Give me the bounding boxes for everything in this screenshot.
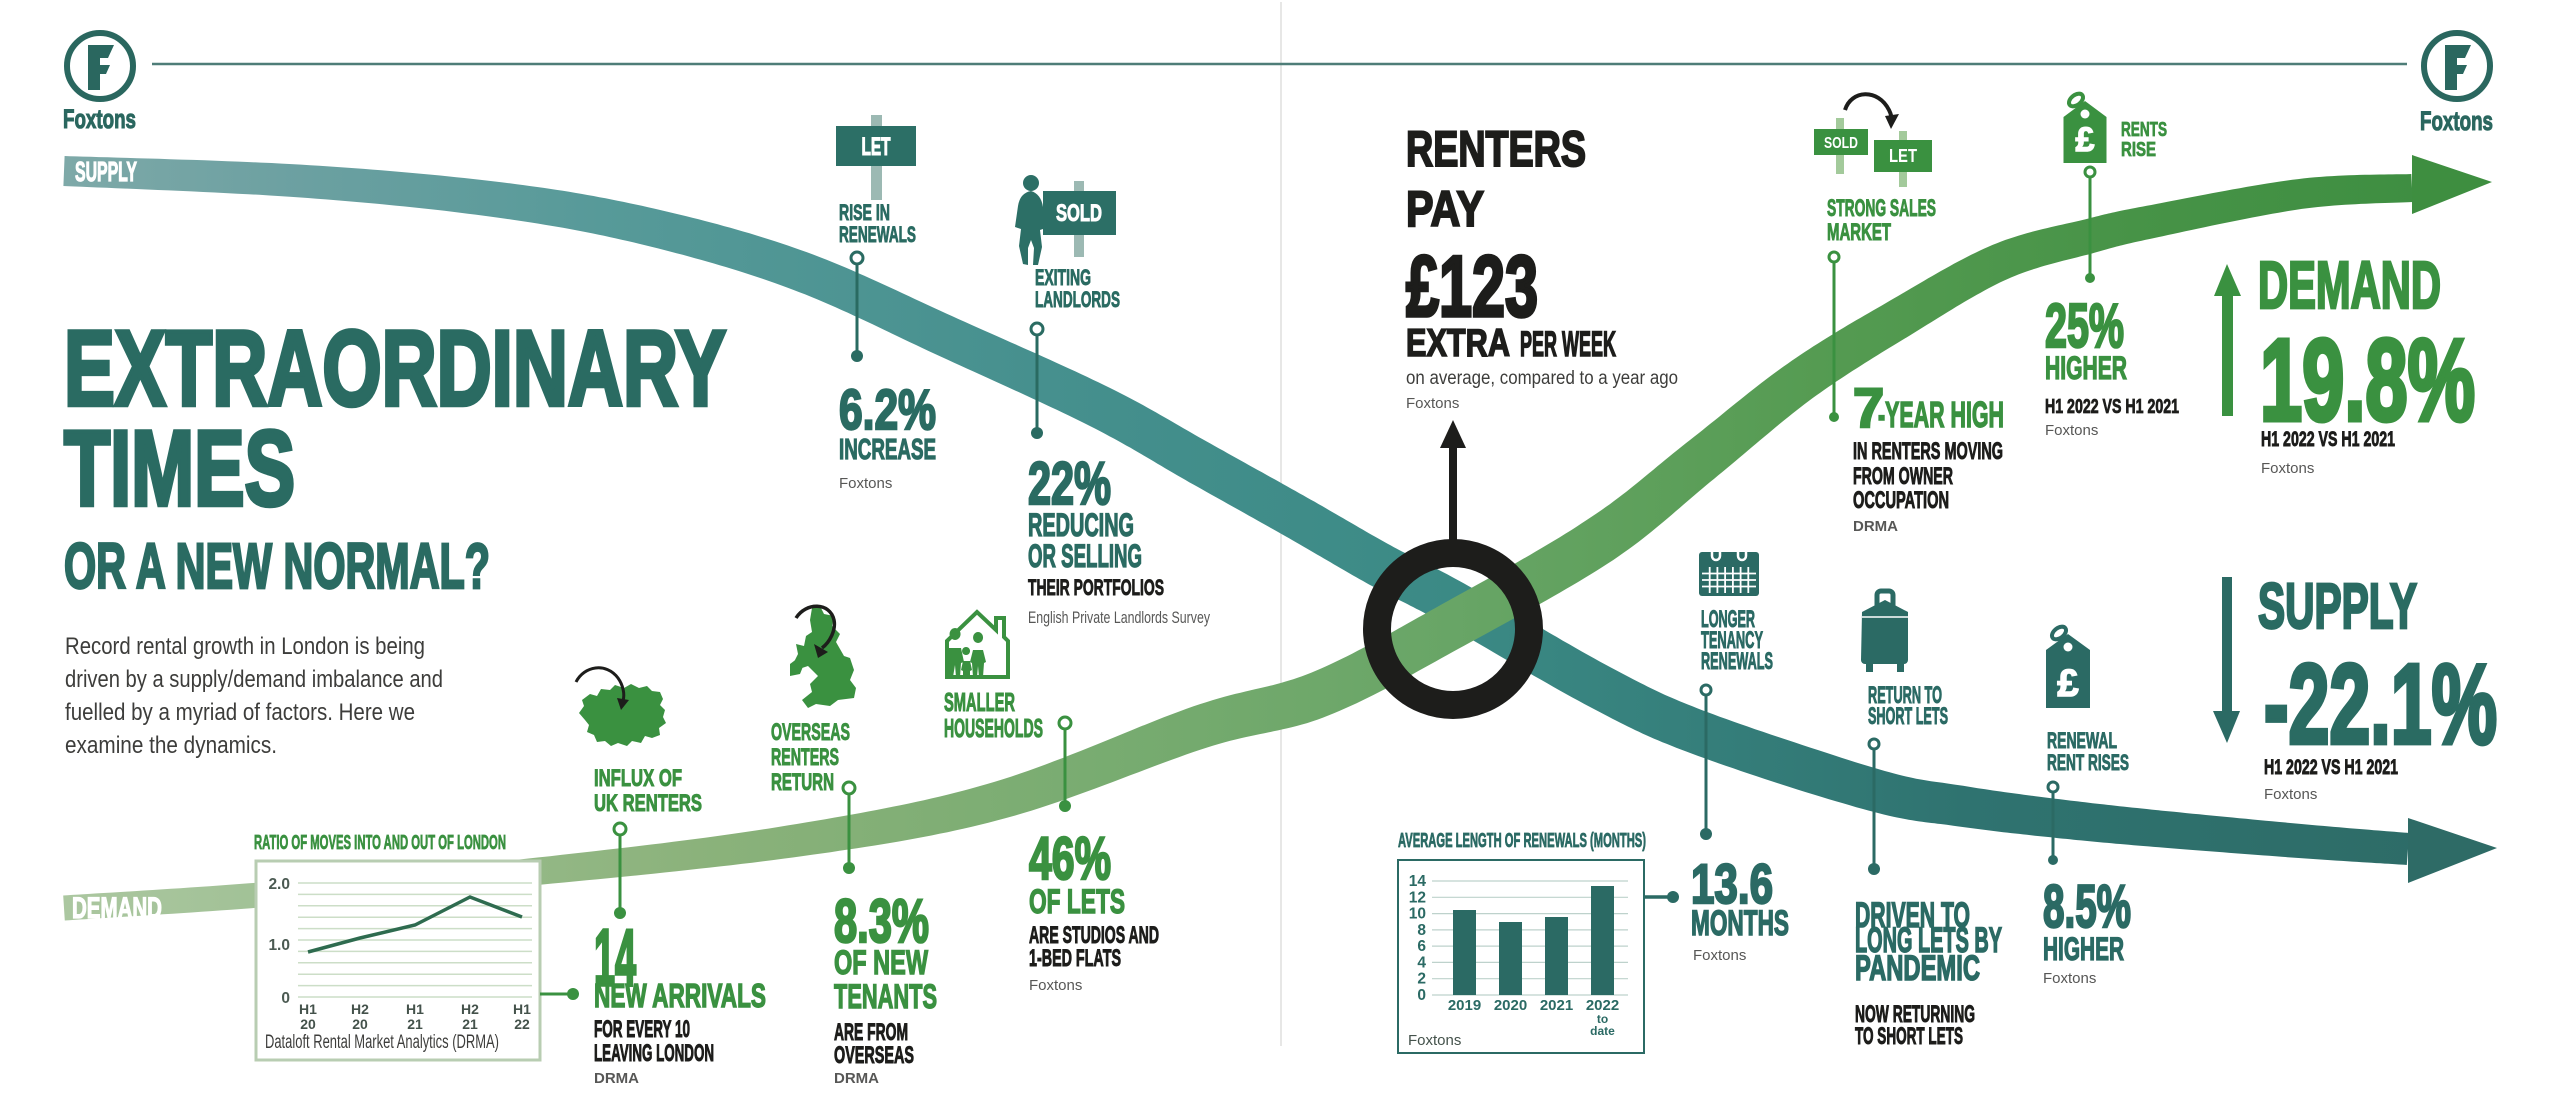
svg-text:RENTERS: RENTERS [1406, 121, 1586, 177]
svg-text:TO SHORT LETS: TO SHORT LETS [1855, 1023, 1963, 1050]
svg-text:Foxtons: Foxtons [1406, 395, 1459, 412]
svg-text:OR SELLING: OR SELLING [1028, 538, 1142, 574]
svg-text:19.8%: 19.8% [2260, 315, 2475, 445]
svg-text:PANDEMIC: PANDEMIC [1855, 949, 1980, 988]
svg-text:Record rental growth in London: Record rental growth in London is being [65, 633, 425, 660]
svg-text:0: 0 [281, 990, 290, 1007]
svg-text:RENEWALS: RENEWALS [839, 222, 916, 247]
svg-text:Foxtons: Foxtons [839, 475, 892, 492]
svg-text:OCCUPATION: OCCUPATION [1853, 487, 1949, 514]
svg-text:LANDLORDS: LANDLORDS [1035, 287, 1120, 312]
svg-text:20: 20 [300, 1016, 316, 1032]
svg-text:HOUSEHOLDS: HOUSEHOLDS [944, 713, 1043, 743]
svg-text:DRMA: DRMA [834, 1070, 879, 1087]
svg-text:8.5%: 8.5% [2043, 873, 2131, 940]
svg-text:OF NEW: OF NEW [834, 944, 929, 982]
svg-text:HIGHER: HIGHER [2045, 350, 2127, 386]
svg-text:8: 8 [1417, 922, 1426, 939]
svg-text:PAY: PAY [1406, 181, 1484, 237]
svg-text:PER WEEK: PER WEEK [1520, 325, 1616, 364]
svg-text:H1: H1 [299, 1001, 317, 1017]
svg-text:UK RENTERS: UK RENTERS [594, 790, 702, 817]
svg-text:21: 21 [407, 1016, 423, 1032]
svg-text:NEW ARRIVALS: NEW ARRIVALS [594, 977, 766, 1014]
svg-text:1-BED FLATS: 1-BED FLATS [1029, 945, 1121, 972]
svg-text:AVERAGE LENGTH OF RENEWALS (MO: AVERAGE LENGTH OF RENEWALS (MONTHS) [1398, 830, 1646, 852]
svg-text:SOLD: SOLD [1056, 200, 1102, 227]
svg-text:EXTRA: EXTRA [1406, 322, 1510, 365]
svg-text:RENEWALS: RENEWALS [1701, 648, 1773, 675]
svg-text:Foxtons: Foxtons [2261, 460, 2314, 477]
svg-text:2: 2 [1417, 971, 1426, 988]
svg-text:IN RENTERS MOVING: IN RENTERS MOVING [1853, 438, 2003, 465]
svg-text:OVERSEAS: OVERSEAS [834, 1042, 914, 1069]
svg-text:fuelled by a myriad of factors: fuelled by a myriad of factors. Here we [65, 699, 415, 726]
svg-text:Foxtons: Foxtons [63, 104, 136, 134]
svg-text:DRMA: DRMA [1853, 518, 1898, 535]
svg-text:HIGHER: HIGHER [2043, 931, 2124, 967]
svg-text:OVERSEAS: OVERSEAS [771, 719, 850, 746]
svg-text:6.2%: 6.2% [839, 378, 936, 442]
svg-text:10: 10 [1409, 906, 1426, 923]
svg-text:RISE: RISE [2121, 139, 2156, 161]
svg-text:OF LETS: OF LETS [1029, 883, 1125, 921]
svg-text:6: 6 [1417, 938, 1426, 955]
svg-text:H2: H2 [461, 1001, 479, 1017]
svg-text:4: 4 [1417, 954, 1426, 971]
svg-text:on average, compared to a year: on average, compared to a year ago [1406, 368, 1678, 389]
svg-text:SOLD: SOLD [1824, 135, 1858, 152]
svg-text:SUPPLY: SUPPLY [75, 156, 137, 187]
svg-text:INCREASE: INCREASE [839, 434, 936, 466]
svg-text:examine the dynamics.: examine the dynamics. [65, 732, 277, 759]
svg-text:THEIR PORTFOLIOS: THEIR PORTFOLIOS [1028, 575, 1164, 600]
svg-text:date: date [1590, 1024, 1615, 1038]
svg-text:RENTERS: RENTERS [771, 744, 839, 771]
svg-text:driven by a supply/demand imba: driven by a supply/demand imbalance and [65, 666, 443, 693]
svg-text:RENT RISES: RENT RISES [2047, 750, 2129, 775]
svg-text:Foxtons: Foxtons [2045, 422, 2098, 439]
svg-text:LET: LET [1889, 146, 1917, 166]
svg-text:1.0: 1.0 [268, 937, 290, 954]
svg-text:MONTHS: MONTHS [1691, 904, 1789, 943]
svg-text:Foxtons: Foxtons [1408, 1032, 1461, 1049]
svg-text:22: 22 [514, 1016, 530, 1032]
svg-text:LET: LET [862, 133, 891, 161]
svg-text:OR A NEW NORMAL?: OR A NEW NORMAL? [64, 530, 490, 602]
svg-text:H1: H1 [513, 1001, 531, 1017]
svg-text:H2: H2 [351, 1001, 369, 1017]
svg-text:LEAVING LONDON: LEAVING LONDON [594, 1040, 714, 1067]
svg-text:DEMAND: DEMAND [2258, 248, 2441, 323]
svg-text:MARKET: MARKET [1827, 219, 1891, 246]
svg-text:14: 14 [1409, 873, 1427, 890]
svg-text:DEMAND: DEMAND [72, 892, 162, 925]
svg-text:SHORT LETS: SHORT LETS [1868, 703, 1948, 730]
svg-text:21: 21 [462, 1016, 478, 1032]
svg-text:RATIO OF MOVES INTO AND OUT OF: RATIO OF MOVES INTO AND OUT OF LONDON [254, 832, 506, 854]
svg-text:RENTS: RENTS [2121, 119, 2167, 141]
svg-text:2019: 2019 [1448, 997, 1481, 1014]
svg-text:DRMA: DRMA [594, 1070, 639, 1087]
svg-text:INFLUX OF: INFLUX OF [594, 765, 682, 792]
svg-text:2020: 2020 [1494, 997, 1527, 1014]
svg-text:Foxtons: Foxtons [1029, 977, 1082, 994]
svg-text:20: 20 [352, 1016, 368, 1032]
svg-text:46%: 46% [1029, 825, 1111, 892]
svg-text:Foxtons: Foxtons [2264, 786, 2317, 803]
svg-text:FOR EVERY 10: FOR EVERY 10 [594, 1016, 690, 1043]
svg-text:H1 2022 VS H1 2021: H1 2022 VS H1 2021 [2261, 428, 2395, 451]
svg-text:H1 2022 VS H1 2021: H1 2022 VS H1 2021 [2264, 756, 2398, 779]
svg-text:Foxtons: Foxtons [2420, 106, 2493, 136]
svg-text:2.0: 2.0 [268, 876, 290, 893]
svg-text:12: 12 [1409, 889, 1426, 906]
svg-text:TIMES: TIMES [64, 408, 295, 528]
svg-text:Foxtons: Foxtons [2043, 970, 2096, 987]
svg-text:TENANTS: TENANTS [834, 978, 937, 1016]
svg-text:FROM OWNER: FROM OWNER [1853, 463, 1953, 490]
svg-text:Dataloft Rental Market Analyti: Dataloft Rental Market Analytics (DRMA) [265, 1032, 499, 1053]
svg-text:H1 2022 VS H1 2021: H1 2022 VS H1 2021 [2045, 396, 2179, 418]
svg-text:£: £ [2057, 663, 2078, 705]
svg-text:-22.1%: -22.1% [2264, 641, 2497, 767]
svg-text:2021: 2021 [1540, 997, 1573, 1014]
svg-text:0: 0 [1417, 987, 1426, 1004]
svg-text:English Private Landlords Surv: English Private Landlords Survey [1028, 609, 1211, 627]
svg-text:-YEAR HIGH: -YEAR HIGH [1878, 394, 2004, 435]
svg-text:RETURN: RETURN [771, 769, 834, 796]
svg-text:STRONG SALES: STRONG SALES [1827, 195, 1936, 222]
svg-text:SUPPLY: SUPPLY [2258, 570, 2417, 642]
svg-text:Foxtons: Foxtons [1693, 947, 1746, 964]
svg-text:£123: £123 [1406, 239, 1538, 335]
svg-text:H1: H1 [406, 1001, 424, 1017]
svg-text:£: £ [2076, 121, 2095, 159]
